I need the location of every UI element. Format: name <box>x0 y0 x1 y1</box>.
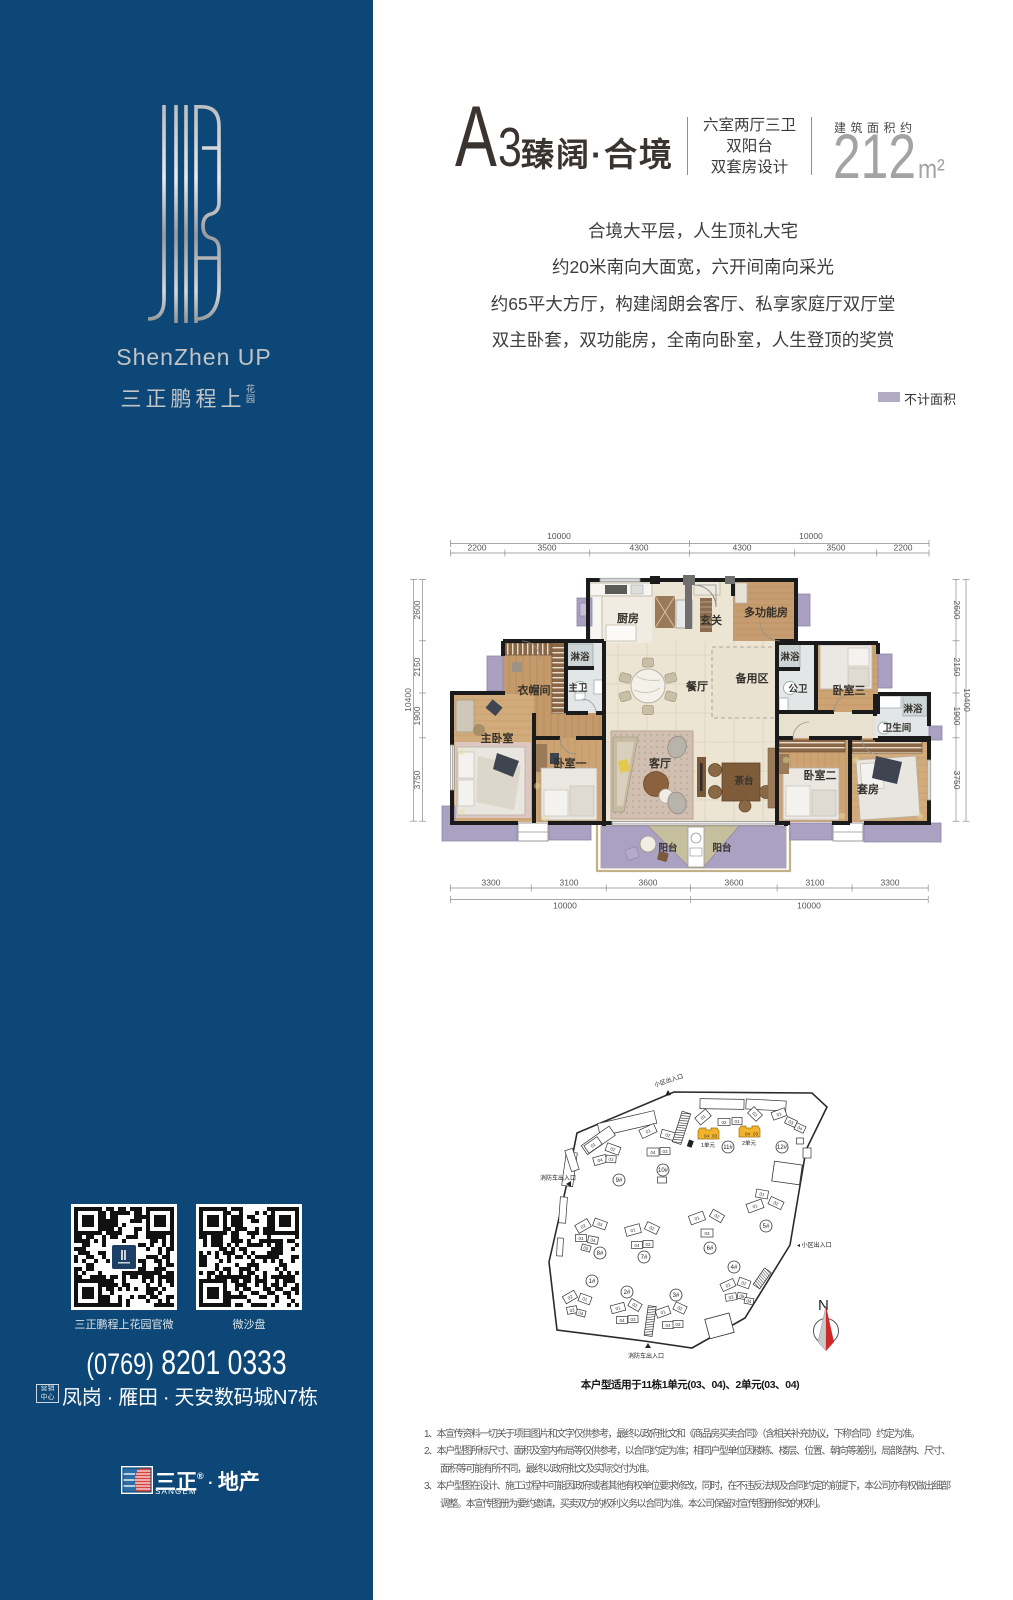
svg-text:03: 03 <box>608 1157 614 1162</box>
svg-text:卫生间: 卫生间 <box>883 722 912 734</box>
svg-text:04: 04 <box>619 1318 625 1323</box>
svg-text:N: N <box>818 1297 829 1314</box>
svg-text:7#: 7# <box>641 1255 648 1261</box>
svg-text:小区出入口: 小区出入口 <box>653 1072 684 1089</box>
svg-text:卧室三: 卧室三 <box>833 683 866 697</box>
svg-text:04: 04 <box>634 1243 640 1248</box>
svg-text:衣帽间: 衣帽间 <box>518 683 551 697</box>
svg-text:消防车出入口: 消防车出入口 <box>628 1352 664 1360</box>
svg-text:3750: 3750 <box>412 770 422 789</box>
svg-text:03: 03 <box>662 1149 668 1154</box>
svg-text:4#: 4# <box>731 1265 738 1271</box>
svg-text:2单元: 2单元 <box>742 1139 757 1147</box>
svg-text:04: 04 <box>745 1132 751 1137</box>
svg-text:8#: 8# <box>597 1251 604 1257</box>
svg-text:公卫: 公卫 <box>788 684 808 695</box>
svg-text:12#: 12# <box>777 1145 788 1151</box>
svg-text:2150: 2150 <box>952 658 962 677</box>
svg-text:备用区: 备用区 <box>735 671 769 685</box>
svg-text:3750: 3750 <box>952 771 962 790</box>
svg-text:1单元: 1单元 <box>701 1141 716 1149</box>
svg-text:2200: 2200 <box>468 543 487 553</box>
svg-text:03: 03 <box>645 1242 651 1247</box>
svg-text:阳台: 阳台 <box>712 842 732 854</box>
svg-text:3500: 3500 <box>827 543 846 553</box>
svg-text:1#: 1# <box>589 1279 596 1285</box>
svg-text:茶台: 茶台 <box>733 775 754 787</box>
svg-text:10400: 10400 <box>403 688 413 712</box>
svg-text:厨房: 厨房 <box>617 611 639 625</box>
svg-text:01: 01 <box>734 1119 740 1124</box>
svg-text:2200: 2200 <box>894 543 913 553</box>
svg-text:套房: 套房 <box>857 782 879 796</box>
svg-text:消防车出入口: 消防车出入口 <box>540 1174 576 1182</box>
svg-text:3300: 3300 <box>482 878 501 888</box>
svg-text:2150: 2150 <box>412 657 422 676</box>
svg-text:04: 04 <box>650 1150 656 1155</box>
svg-text:03: 03 <box>753 1132 759 1137</box>
svg-text:3500: 3500 <box>538 543 557 553</box>
svg-text:阳台: 阳台 <box>658 842 678 854</box>
svg-text:淋浴: 淋浴 <box>570 651 590 663</box>
svg-text:2600: 2600 <box>412 600 422 619</box>
svg-text:3100: 3100 <box>560 878 579 888</box>
svg-text:04: 04 <box>665 1323 671 1328</box>
svg-text:4300: 4300 <box>630 543 649 553</box>
svg-text:03: 03 <box>712 1134 718 1139</box>
svg-text:03: 03 <box>704 1231 710 1236</box>
svg-text:主卧室: 主卧室 <box>481 731 514 745</box>
svg-text:03: 03 <box>675 1322 681 1327</box>
svg-text:卧室二: 卧室二 <box>804 768 837 782</box>
svg-text:3100: 3100 <box>806 878 825 888</box>
svg-text:2600: 2600 <box>952 601 962 620</box>
svg-text:6#: 6# <box>707 1246 714 1252</box>
svg-text:餐厅: 餐厅 <box>685 679 708 693</box>
svg-text:01: 01 <box>578 1236 584 1241</box>
svg-text:3300: 3300 <box>881 878 900 888</box>
svg-text:1900: 1900 <box>412 706 422 725</box>
svg-text:3600: 3600 <box>725 878 744 888</box>
svg-text:10000: 10000 <box>553 901 577 911</box>
svg-text:3600: 3600 <box>639 878 658 888</box>
svg-text:04: 04 <box>704 1134 710 1139</box>
svg-text:10000: 10000 <box>547 531 571 541</box>
svg-text:主卫: 主卫 <box>568 682 588 694</box>
svg-text:10000: 10000 <box>799 531 823 541</box>
svg-text:玄关: 玄关 <box>700 613 722 627</box>
svg-text:3#: 3# <box>673 1293 680 1299</box>
svg-text:03: 03 <box>630 1317 636 1322</box>
svg-text:淋浴: 淋浴 <box>903 703 923 715</box>
svg-text:5#: 5# <box>763 1224 770 1230</box>
svg-text:◂ 小区出入口: ◂ 小区出入口 <box>797 1241 832 1249</box>
svg-text:9#: 9# <box>616 1178 623 1184</box>
svg-text:02: 02 <box>721 1120 727 1125</box>
svg-text:卧室一: 卧室一 <box>554 756 587 770</box>
svg-text:1900: 1900 <box>952 707 962 726</box>
svg-text:10#: 10# <box>658 1168 669 1174</box>
svg-text:10000: 10000 <box>797 901 821 911</box>
svg-text:11#: 11# <box>723 1145 733 1151</box>
svg-text:多功能房: 多功能房 <box>744 605 788 619</box>
svg-text:客厅: 客厅 <box>648 756 671 770</box>
svg-text:4300: 4300 <box>733 543 752 553</box>
svg-text:10400: 10400 <box>962 688 972 712</box>
svg-text:2#: 2# <box>624 1290 631 1296</box>
svg-text:淋浴: 淋浴 <box>780 651 800 663</box>
